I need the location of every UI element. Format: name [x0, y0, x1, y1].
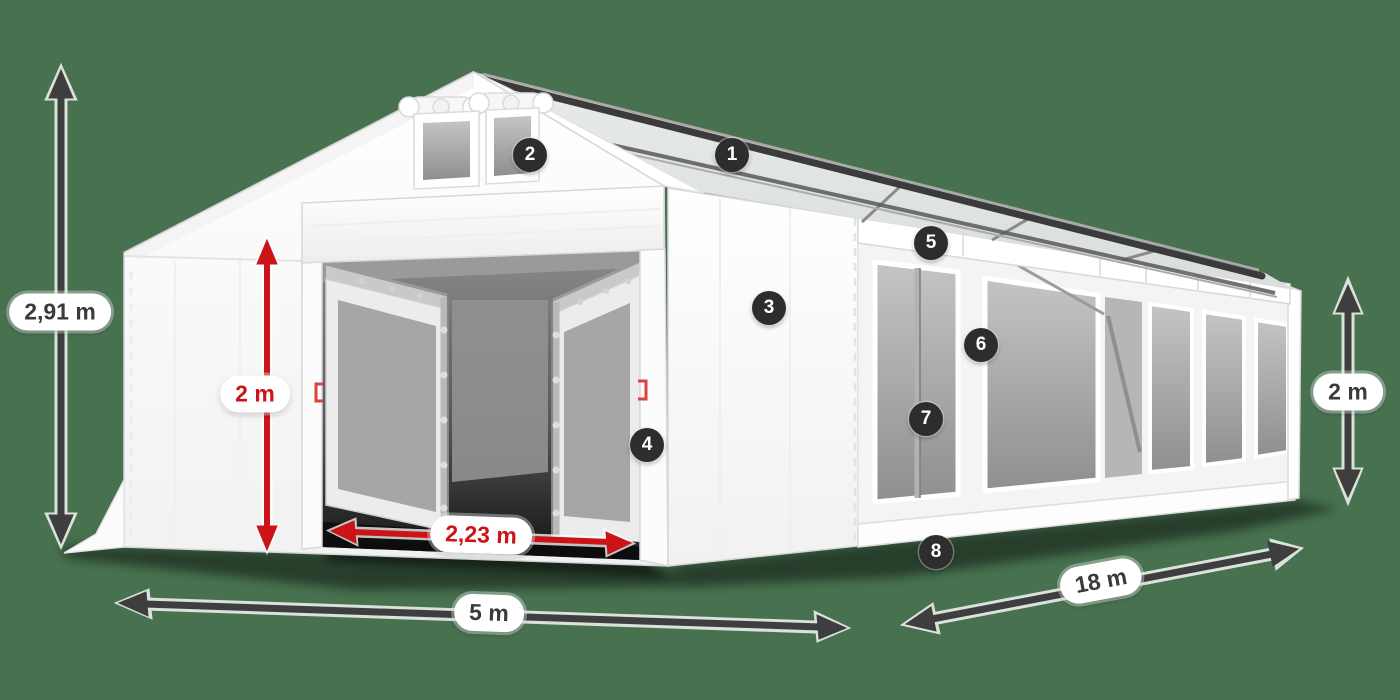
side-wall [668, 188, 1301, 566]
side-window-5 [1256, 320, 1288, 457]
callout-8: 8 [919, 535, 953, 569]
tent-dimensions-diagram: 2,91 m 2 m 2,23 m 5 m 18 m 2 m 1 2 3 4 5… [0, 0, 1400, 700]
side-panel-solid [668, 188, 858, 566]
door-mesh-left [338, 300, 436, 512]
dimension-label-side-height: 2 m [1313, 374, 1383, 411]
entrance-post-right [640, 249, 668, 566]
tent-illustration [0, 0, 1400, 700]
callout-1: 1 [715, 138, 749, 172]
callout-2: 2 [513, 138, 547, 172]
dimension-label-entrance-height: 2 m [220, 376, 290, 413]
door-mesh-right [564, 303, 630, 522]
dimension-label-entrance-width: 2,23 m [430, 515, 533, 556]
side-window-3 [1150, 304, 1192, 472]
entrance [302, 186, 668, 566]
far-interior-panel [452, 300, 548, 482]
side-window-2 [985, 278, 1098, 491]
callout-5: 5 [914, 226, 948, 260]
callout-7: 7 [909, 402, 943, 436]
corner-post [1288, 286, 1301, 500]
callout-4: 4 [630, 428, 664, 462]
dimension-label-front-width: 5 m [454, 593, 525, 632]
callout-6: 6 [964, 328, 998, 362]
entrance-post-left [302, 262, 322, 549]
callout-3: 3 [752, 291, 786, 325]
dimension-label-ridge-height: 2,91 m [9, 294, 111, 331]
side-window-4 [1204, 312, 1244, 465]
